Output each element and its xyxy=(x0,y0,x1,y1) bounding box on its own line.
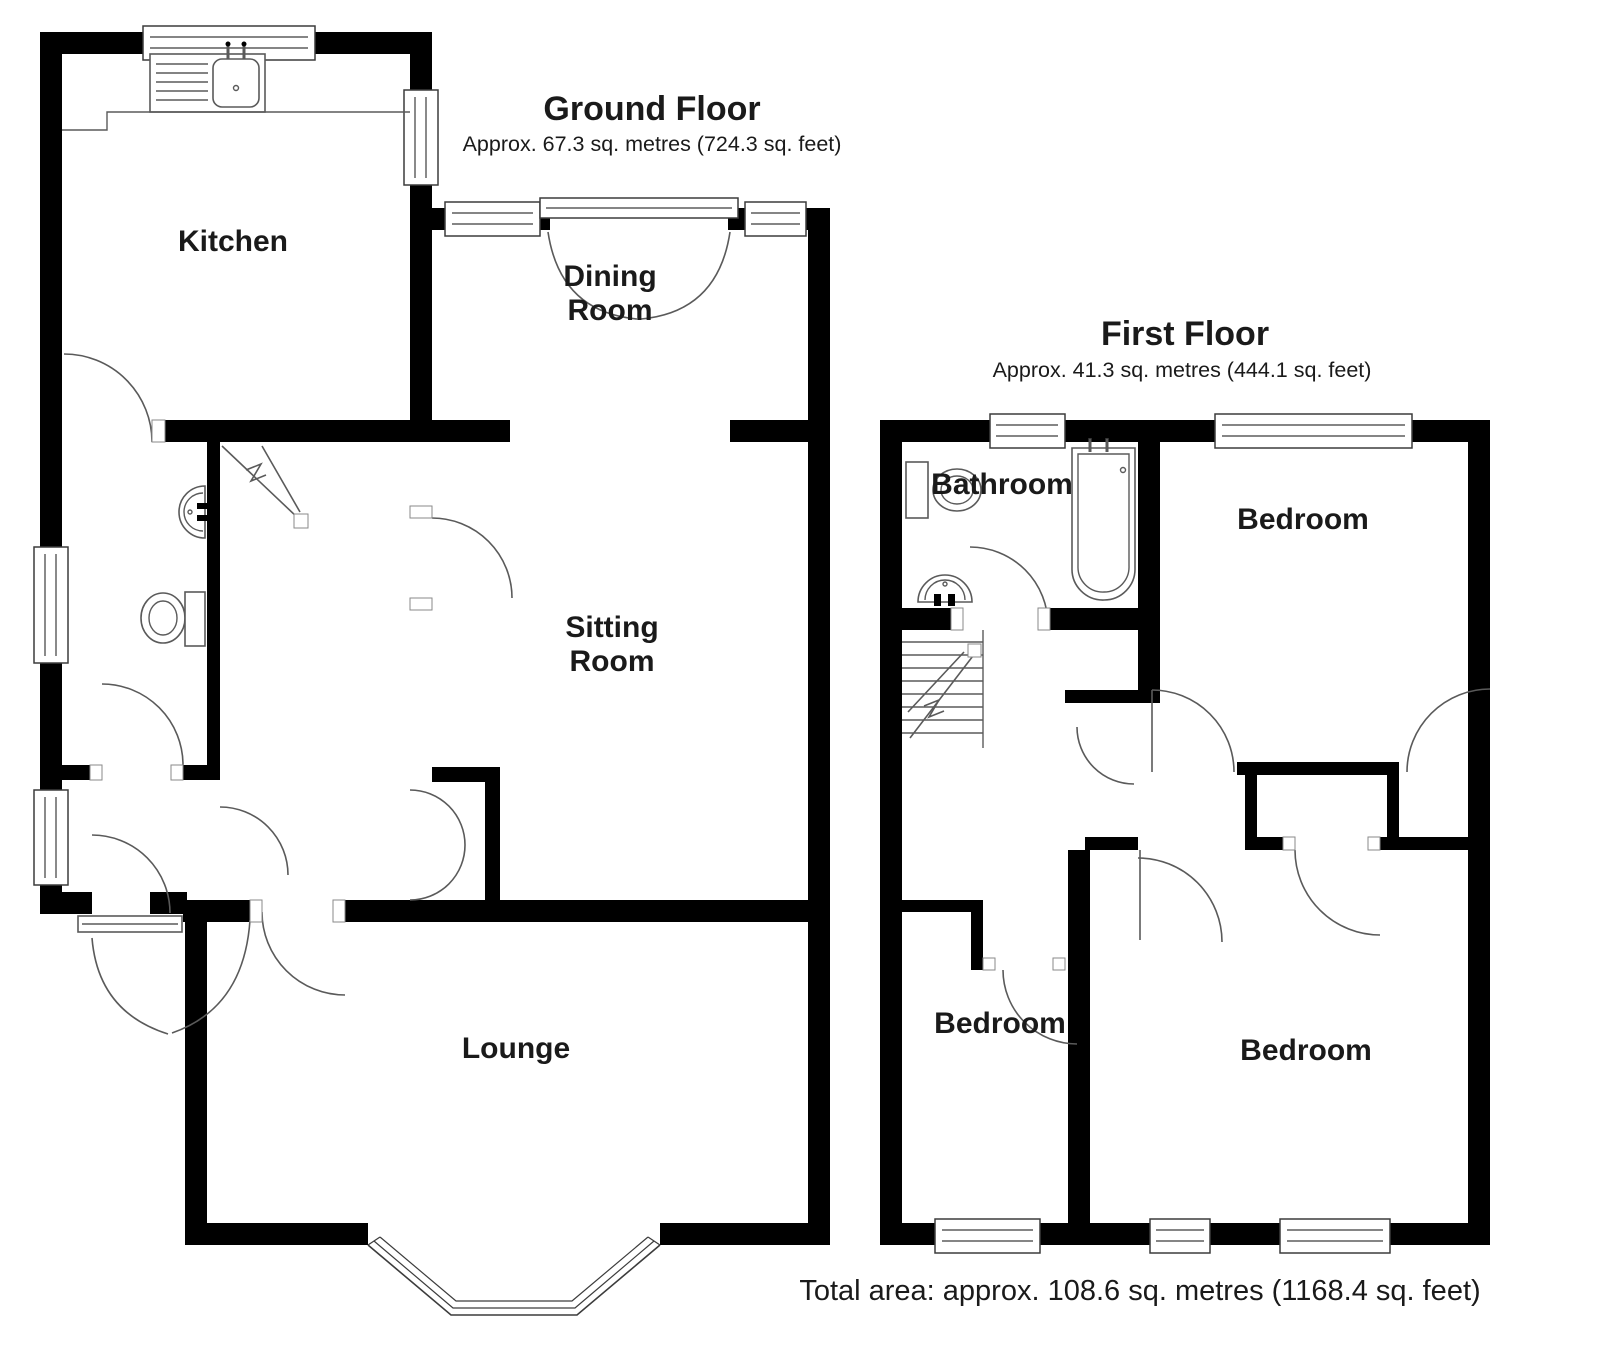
room-label-lounge: Lounge xyxy=(462,1032,570,1065)
room-label-bathroom: Bathroom xyxy=(931,468,1073,501)
landing-door2-arc xyxy=(1138,858,1222,942)
bathroom-window-icon xyxy=(990,414,1065,448)
room-label-kitchen: Kitchen xyxy=(178,225,288,258)
ground-floor-area: Approx. 67.3 sq. metres (724.3 sq. feet) xyxy=(463,132,842,156)
stairs-up-icon xyxy=(222,446,308,528)
room-label-bedroom-bottom-right: Bedroom xyxy=(1240,1034,1372,1067)
porch-door-arc-right xyxy=(172,920,250,1033)
porch-door-arc-left xyxy=(92,938,168,1034)
bath-tub-icon xyxy=(1072,434,1135,601)
wc-door-arc xyxy=(102,684,183,765)
dining-window-right-icon xyxy=(745,202,806,236)
hall-double-door-arc-2 xyxy=(410,845,465,900)
total-area-text: Total area: approx. 108.6 sq. metres (11… xyxy=(799,1275,1480,1307)
kitchen-sink-icon xyxy=(62,42,410,131)
patio-door-frame-icon xyxy=(540,198,738,218)
wc-sink-icon xyxy=(179,486,207,538)
ground-floor-plan: Ground Floor Approx. 67.3 sq. metres (72… xyxy=(34,26,841,1315)
bedroom-right-door-arc xyxy=(1295,850,1380,935)
hall-double-door-arc-1 xyxy=(410,790,465,845)
first-floor-windows xyxy=(935,414,1412,1253)
floorplan-page: Ground Floor Approx. 67.3 sq. metres (72… xyxy=(0,0,1600,1370)
bathroom-sink-icon xyxy=(918,575,972,606)
front-step-icon xyxy=(78,916,182,932)
first-floor-title: First Floor xyxy=(1101,315,1269,353)
stairs-down-icon xyxy=(902,630,983,748)
sitting-room-door-arc xyxy=(432,518,512,598)
bathroom-door-arc xyxy=(970,547,1048,625)
ground-floor-title: Ground Floor xyxy=(543,90,760,128)
first-floor-jambs xyxy=(951,608,1380,970)
room-label-dining-1: Dining xyxy=(563,260,656,293)
hall-window-upper-icon xyxy=(34,547,68,663)
room-label-dining-2: Room xyxy=(568,294,653,327)
bedroom-top-door-arc xyxy=(1152,690,1234,772)
room-label-bedroom-bottom-left: Bedroom xyxy=(934,1007,1066,1040)
bedroom-top-window-icon xyxy=(1215,414,1412,448)
bay-window-icon xyxy=(368,1237,660,1315)
room-label-bedroom-top: Bedroom xyxy=(1237,503,1369,536)
landing-door-arc xyxy=(1077,727,1134,784)
first-floor-area: Approx. 41.3 sq. metres (444.1 sq. feet) xyxy=(993,358,1372,382)
room-label-sitting-2: Room xyxy=(570,645,655,678)
first-floor-walls xyxy=(880,420,1490,1245)
dining-window-left-icon xyxy=(445,202,540,236)
kitchen-side-window-icon xyxy=(404,90,438,185)
bedroom-left-window-icon xyxy=(935,1219,1040,1253)
room-label-sitting-1: Sitting xyxy=(565,611,658,644)
kitchen-door-arc xyxy=(64,354,152,442)
first-floor-plan: First Floor Approx. 41.3 sq. metres (444… xyxy=(880,315,1490,1253)
toilet-icon xyxy=(141,592,205,646)
bedroom-right-window-icon xyxy=(1280,1219,1390,1253)
stairs-door-arc xyxy=(220,807,288,875)
hall-window-lower-icon xyxy=(34,790,68,885)
lounge-door-arc xyxy=(262,912,345,995)
ground-floor-jambs xyxy=(90,420,432,922)
floorplan-canvas: Ground Floor Approx. 67.3 sq. metres (72… xyxy=(0,0,1600,1370)
landing-window-icon xyxy=(1150,1219,1210,1253)
